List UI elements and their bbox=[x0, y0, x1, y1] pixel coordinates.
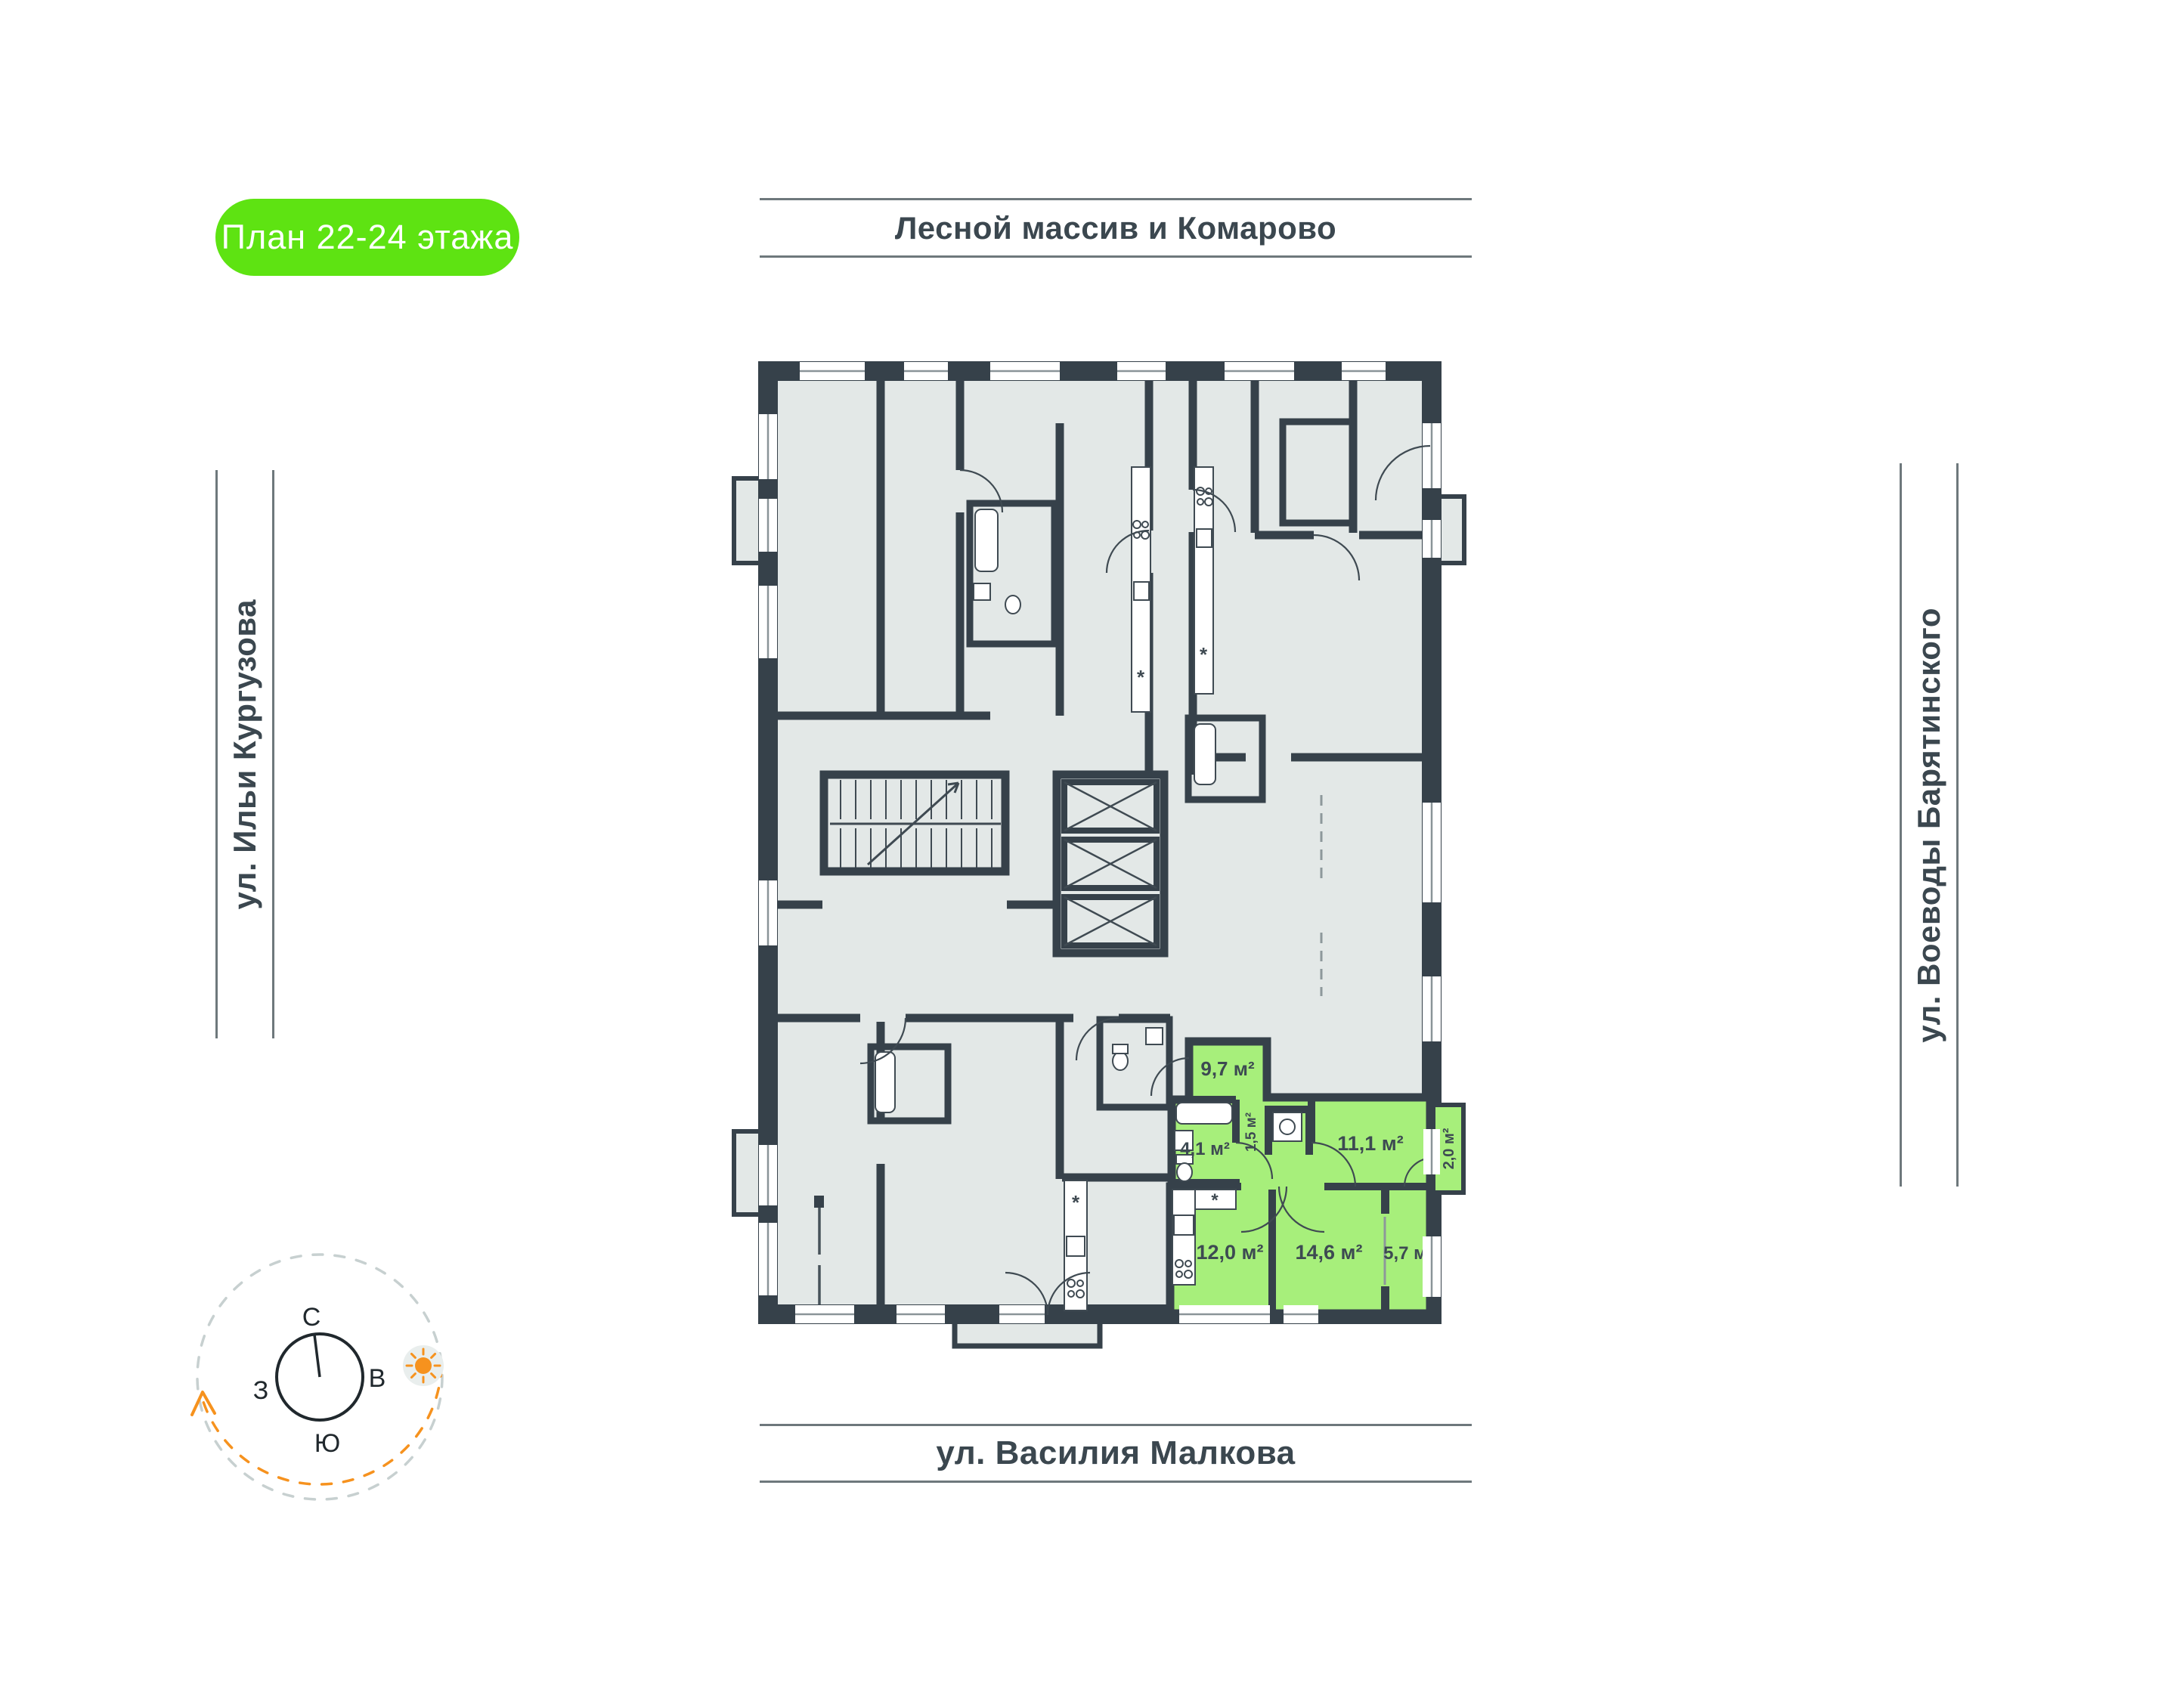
street-right-text: ул. Воеводы Барятинского bbox=[1911, 608, 1947, 1043]
street-label-bottom: ул. Василия Малкова bbox=[760, 1424, 1472, 1483]
room-label-bedroom: 11,1 м² bbox=[1337, 1132, 1404, 1155]
sink-icon bbox=[1067, 1236, 1085, 1256]
toilet-icon bbox=[1177, 1163, 1192, 1181]
sink-icon bbox=[1197, 529, 1212, 547]
sink-icon bbox=[974, 583, 990, 600]
street-label-top: Лесной массив и Комарово bbox=[760, 198, 1472, 258]
elevator-core bbox=[1057, 775, 1164, 953]
washing-machine-drum bbox=[1280, 1119, 1295, 1134]
room-label-balcony: 2,0 м² bbox=[1441, 1128, 1457, 1169]
street-label-right: ул. Воеводы Барятинского bbox=[1900, 463, 1959, 1187]
street-label-left: ул. Ильи Кургузова bbox=[215, 470, 274, 1038]
bathtub-icon bbox=[975, 509, 998, 571]
bathtub-icon bbox=[875, 1052, 895, 1112]
floor-plan-page: План 22-24 этажа Лесной массив и Комаров… bbox=[0, 0, 2177, 1708]
sink-icon bbox=[1174, 1215, 1194, 1235]
compass-north-label: С bbox=[302, 1303, 321, 1332]
toilet-icon bbox=[1005, 596, 1020, 614]
room-label-bathroom: 4,1 м² bbox=[1180, 1139, 1230, 1159]
room-label-hall: 9,7 м² bbox=[1200, 1057, 1255, 1080]
fridge-icon: * bbox=[1200, 643, 1208, 666]
room-label-kitchen: 12,0 м² bbox=[1196, 1241, 1263, 1264]
building-plan: * * * bbox=[703, 333, 1482, 1360]
floor-badge: План 22-24 этажа bbox=[215, 199, 519, 276]
floor-badge-label: План 22-24 этажа bbox=[221, 218, 514, 257]
sun-icon bbox=[403, 1345, 444, 1386]
compass: С В З Ю bbox=[174, 1224, 476, 1527]
street-bottom-text: ул. Василия Малкова bbox=[936, 1434, 1295, 1472]
compass-east-label: В bbox=[369, 1364, 386, 1393]
compass-west-label: З bbox=[253, 1376, 269, 1405]
fridge-icon: * bbox=[1072, 1191, 1080, 1214]
room-label-storage: 1,5 м² bbox=[1243, 1112, 1259, 1152]
sink-icon bbox=[1146, 1028, 1163, 1044]
compass-rose: С В З Ю bbox=[253, 1303, 386, 1458]
toilet-tank-icon bbox=[1113, 1044, 1128, 1054]
street-top-text: Лесной массив и Комарово bbox=[895, 210, 1336, 246]
stair-core bbox=[824, 775, 1005, 871]
room-label-living: 14,6 м² bbox=[1295, 1241, 1362, 1264]
street-left-text: ул. Ильи Кургузова bbox=[227, 599, 263, 910]
fridge-icon: * bbox=[1211, 1190, 1219, 1211]
bathtub-icon bbox=[1176, 1103, 1232, 1124]
compass-south-label: Ю bbox=[314, 1429, 340, 1458]
kitchen-counter bbox=[1172, 1190, 1195, 1285]
sink-icon bbox=[1134, 582, 1149, 600]
toilet-icon bbox=[1113, 1052, 1128, 1070]
fridge-icon: * bbox=[1137, 666, 1145, 688]
bathtub-icon bbox=[1194, 724, 1215, 784]
